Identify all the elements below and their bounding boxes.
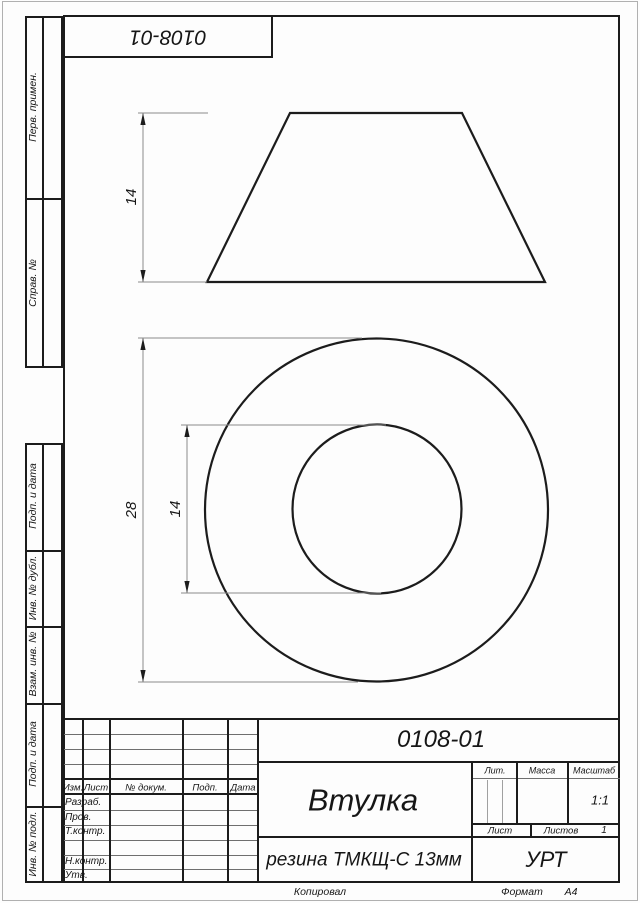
lit-label: Лит. <box>484 767 505 776</box>
part-name-text: Втулка <box>308 785 418 816</box>
copied-label: Копировал <box>294 887 346 898</box>
title-block-line <box>227 720 229 883</box>
organization-text: УРТ <box>526 849 567 871</box>
front-view-trapezoid <box>207 113 545 282</box>
title-block-line <box>257 720 259 883</box>
title-block-line <box>62 718 620 720</box>
dimension-arrow <box>184 581 189 593</box>
engineering-drawing-sheet: 0108-01 Перв. примен. Справ. № Подп. и д… <box>0 0 640 903</box>
change-header-docum: № докум. <box>125 783 167 793</box>
dimension-arrow <box>140 270 145 282</box>
sheet-label: Лист <box>488 826 512 836</box>
dimension-arrow <box>140 338 145 350</box>
signature-row-nkontr: Н.контр. <box>65 857 107 867</box>
title-block-line <box>258 761 620 763</box>
lit-subcell-line <box>487 780 488 823</box>
dimension-value-front-height: 14 <box>123 189 140 206</box>
title-block-line <box>530 823 532 838</box>
top-view-outer-circle <box>205 339 548 682</box>
sheets-label: Листов <box>544 826 579 836</box>
change-header-list: Лист <box>84 783 108 793</box>
scale-value: 1:1 <box>591 794 609 807</box>
dimension-arrow <box>140 670 145 682</box>
signature-row-prov: Пров. <box>65 813 91 823</box>
title-block-line <box>182 720 184 883</box>
title-block-line <box>471 761 473 883</box>
scale-label: Масштаб <box>573 767 615 776</box>
dimension-arrow <box>140 113 145 125</box>
dimension-value-outer-diameter: 28 <box>123 501 140 519</box>
mass-label: Масса <box>529 767 556 776</box>
signature-row-utv: Утв. <box>65 871 88 881</box>
change-header-podp: Подп. <box>192 783 217 793</box>
title-block-line <box>567 763 569 825</box>
change-header-izm: Изм. <box>63 783 83 793</box>
designation-text: 0108-01 <box>397 728 485 752</box>
material-text: резина ТМКЩ-С 13мм <box>266 851 462 870</box>
format-label: Формат <box>501 887 543 898</box>
signature-row-tkontr: Т.контр. <box>65 827 105 837</box>
lit-subcell-line <box>502 780 503 823</box>
title-block-line <box>472 778 620 779</box>
dimension-value-inner-diameter: 14 <box>167 501 184 518</box>
sheets-value: 1 <box>601 826 607 836</box>
title-block-line <box>516 763 518 825</box>
title-block-line <box>258 836 620 838</box>
dimension-arrow <box>184 425 189 437</box>
format-value: А4 <box>565 887 578 898</box>
title-block-line <box>109 720 111 883</box>
top-view-inner-circle <box>293 425 462 594</box>
signature-row-razrab: Разраб. <box>65 798 101 808</box>
change-header-data: Дата <box>230 783 255 793</box>
